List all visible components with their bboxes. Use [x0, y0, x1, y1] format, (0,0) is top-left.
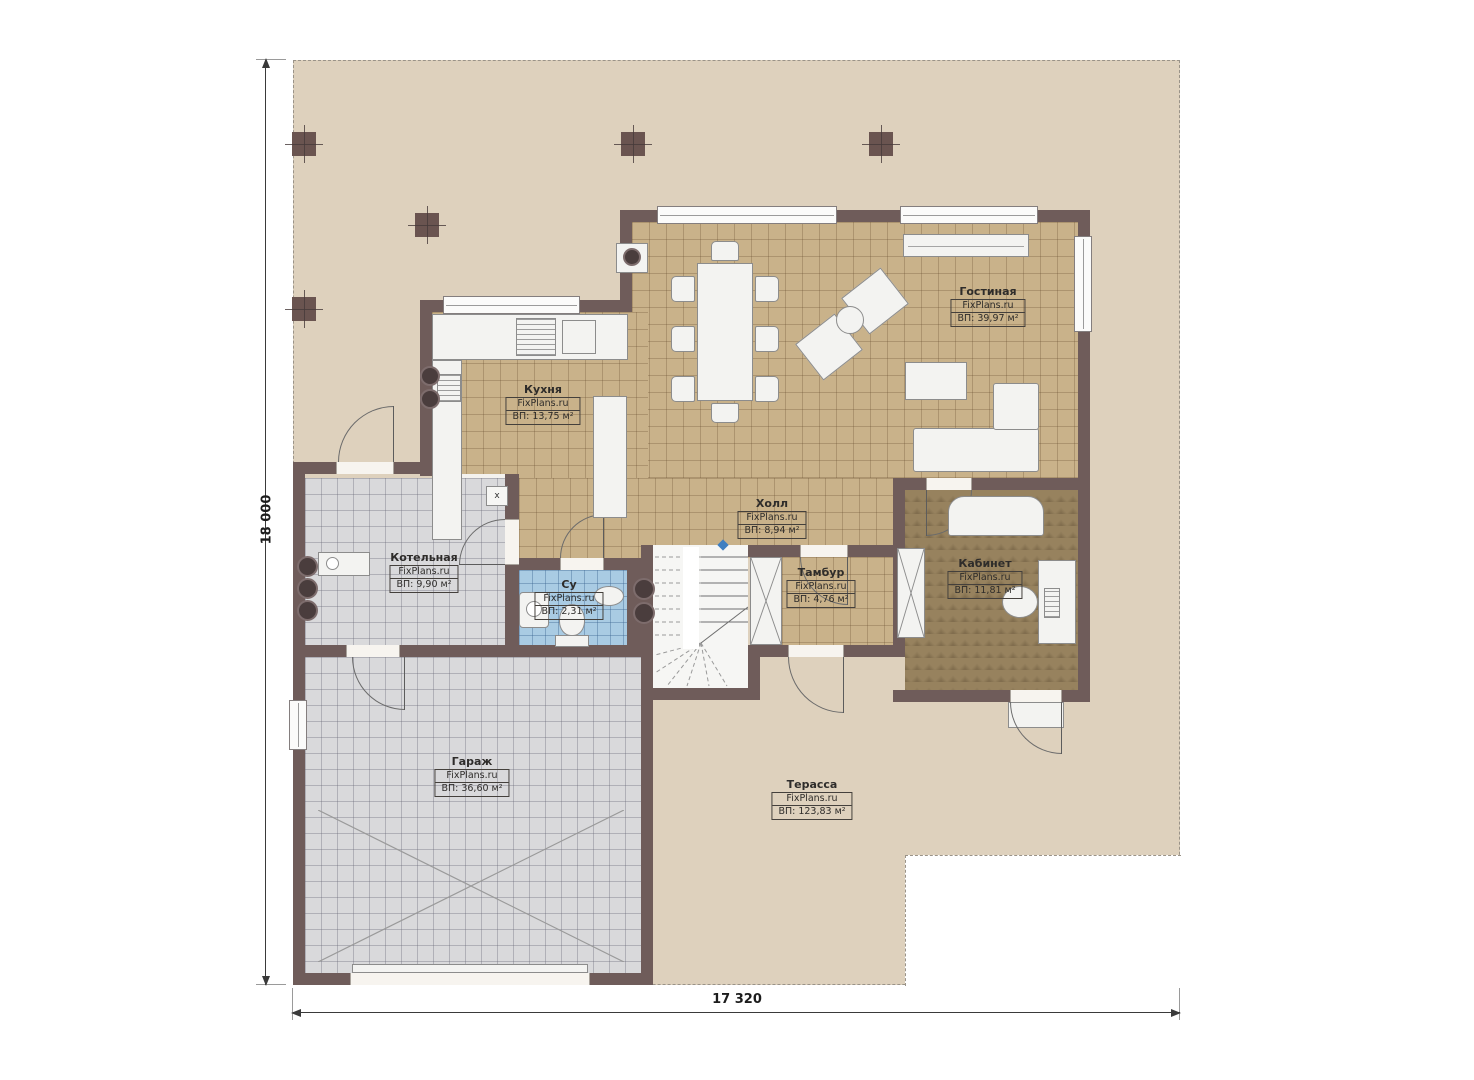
column: [869, 132, 893, 156]
column: [621, 132, 645, 156]
wall-segment: [420, 300, 432, 476]
site-notch: [905, 855, 1181, 986]
entrance-door-opening: [788, 645, 844, 657]
dimension-height-label: 18 000: [260, 475, 275, 565]
window: [657, 206, 837, 224]
stove-icon: [516, 318, 556, 356]
dining-chair: [671, 326, 695, 352]
room-label-bathroom: Су FixPlans.ru ВП: 2,31 м²: [534, 578, 603, 620]
flue-icon: [633, 578, 655, 600]
dining-chair: [755, 376, 779, 402]
room-area: ВП: 39,97 м²: [951, 313, 1024, 325]
room-label-study: Кабинет FixPlans.ru ВП: 11,81 м²: [947, 557, 1022, 599]
window: [1074, 236, 1092, 332]
column: [292, 297, 316, 321]
watermark: FixPlans.ru: [390, 566, 457, 579]
arrow-down-icon: [262, 976, 270, 986]
room-area: ВП: 2,31 м²: [535, 606, 602, 618]
room-area: ВП: 9,90 м²: [390, 579, 457, 591]
boiler-equipment-icon: [297, 578, 318, 599]
round-side-table: [836, 306, 864, 334]
chimney-flue-icon: [623, 248, 641, 266]
garage-door-opening: [350, 973, 590, 985]
door-opening: [560, 558, 604, 570]
column: [415, 213, 439, 237]
room-label-terrace: Терасса FixPlans.ru ВП: 123,83 м²: [771, 778, 852, 820]
door-leaf: [926, 490, 927, 536]
window: [289, 700, 307, 750]
door-leaf: [1061, 702, 1062, 754]
door-leaf: [404, 657, 405, 710]
room-name: Кабинет: [947, 557, 1022, 570]
watermark: FixPlans.ru: [435, 770, 508, 783]
desk-equipment-icon: [1044, 588, 1060, 618]
extension-line: [256, 984, 286, 985]
duct-shaft: x: [486, 486, 508, 506]
wardrobe: [897, 548, 925, 638]
floor-plan-canvas: x Гостиная FixPlans.ru ВП: 39,97 м² Кухн…: [0, 0, 1474, 1080]
flue-icon: [633, 602, 655, 624]
column: [292, 132, 316, 156]
kitchen-island: [593, 396, 627, 518]
sofa: [913, 428, 1039, 472]
sink-drain-icon: [326, 557, 339, 570]
arrow-up-icon: [262, 58, 270, 68]
watermark: FixPlans.ru: [787, 581, 854, 594]
dining-table: [697, 263, 753, 401]
duct-label: x: [494, 491, 499, 501]
garage-door-leaf: [352, 964, 588, 973]
arrow-left-icon: [291, 1009, 301, 1017]
kitchen-sink-icon: [562, 320, 596, 354]
boiler-equipment-icon: [297, 556, 318, 577]
watermark: FixPlans.ru: [506, 398, 579, 411]
room-label-hall: Холл FixPlans.ru ВП: 8,94 м²: [737, 497, 806, 539]
dining-chair: [711, 241, 739, 261]
room-name: Гараж: [434, 755, 509, 768]
sofa-chaise: [993, 383, 1039, 430]
dimension-line-horizontal: [293, 1012, 1180, 1013]
stairs-icon: [653, 545, 748, 688]
door-leaf: [843, 657, 844, 713]
room-label-boiler: Котельная FixPlans.ru ВП: 9,90 м²: [389, 551, 458, 593]
room-name: Су: [534, 578, 603, 591]
watermark: FixPlans.ru: [772, 793, 851, 806]
window: [900, 206, 1038, 224]
wall-segment: [748, 645, 760, 700]
room-name: Кухня: [505, 383, 580, 396]
door-opening: [1010, 690, 1062, 702]
room-name: Тамбур: [786, 566, 855, 579]
room-name: Котельная: [389, 551, 458, 564]
window: [443, 296, 580, 314]
door-opening: [505, 519, 519, 565]
room-label-garage: Гараж FixPlans.ru ВП: 36,60 м²: [434, 755, 509, 797]
dimension-width-label: 17 320: [677, 992, 797, 1007]
wall-segment: [641, 688, 760, 700]
door-opening: [926, 478, 972, 490]
watermark: FixPlans.ru: [951, 300, 1024, 313]
dining-chair: [755, 326, 779, 352]
door-opening: [346, 645, 400, 657]
dining-chair: [711, 403, 739, 423]
wall-segment: [893, 478, 1090, 490]
burner-icon: [420, 366, 440, 386]
dining-chair: [671, 276, 695, 302]
arrow-right-icon: [1171, 1009, 1181, 1017]
watermark: FixPlans.ru: [738, 512, 805, 525]
door-leaf: [459, 564, 505, 565]
garage-cross-icon: [318, 810, 624, 962]
room-area: ВП: 123,83 м²: [772, 806, 851, 818]
room-label-tambour: Тамбур FixPlans.ru ВП: 4,76 м²: [786, 566, 855, 608]
staircase: [653, 545, 748, 688]
room-name: Гостиная: [950, 285, 1025, 298]
extension-line: [256, 59, 286, 60]
room-name: Холл: [737, 497, 806, 510]
wardrobe: [750, 557, 782, 645]
dining-chair: [671, 376, 695, 402]
room-name: Терасса: [771, 778, 852, 791]
study-sofa: [948, 496, 1044, 536]
toilet-tank: [555, 635, 589, 647]
room-area: ВП: 36,60 м²: [435, 783, 508, 795]
room-label-living: Гостиная FixPlans.ru ВП: 39,97 м²: [950, 285, 1025, 327]
room-area: ВП: 4,76 м²: [787, 594, 854, 606]
sideboard: [903, 234, 1029, 257]
boiler-equipment-icon: [297, 600, 318, 621]
door-leaf: [393, 406, 394, 462]
coffee-table: [905, 362, 967, 400]
watermark: FixPlans.ru: [948, 572, 1021, 585]
room-area: ВП: 11,81 м²: [948, 585, 1021, 597]
door-opening: [800, 545, 848, 557]
door-leaf: [603, 514, 604, 558]
burner-icon: [420, 389, 440, 409]
room-label-kitchen: Кухня FixPlans.ru ВП: 13,75 м²: [505, 383, 580, 425]
room-area: ВП: 8,94 м²: [738, 525, 805, 537]
drainer-icon: [437, 374, 461, 402]
dining-chair: [755, 276, 779, 302]
door-opening: [336, 462, 394, 474]
room-area: ВП: 13,75 м²: [506, 411, 579, 423]
watermark: FixPlans.ru: [535, 593, 602, 606]
